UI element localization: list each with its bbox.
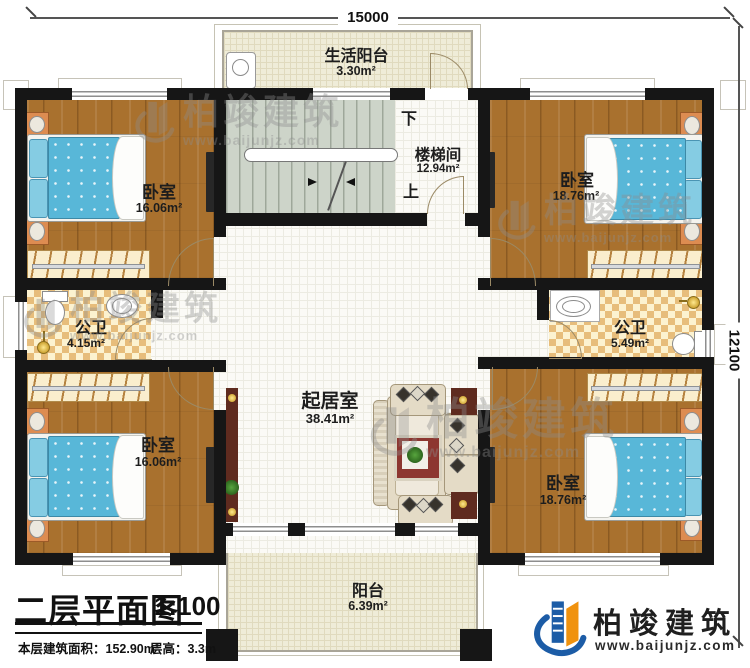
wall-segment <box>458 523 478 536</box>
wall-segment <box>478 88 490 237</box>
wall-segment <box>15 88 27 302</box>
shower-head <box>687 296 700 309</box>
wardrobe <box>587 250 704 281</box>
window <box>530 88 645 100</box>
nightstand <box>25 218 49 245</box>
window <box>525 553 660 565</box>
room-label-bedroom-top-left: 卧室 <box>104 184 214 203</box>
room-label-life-balcony: 生活阳台 <box>314 48 399 66</box>
room-label-stairwell: 楼梯间 <box>408 147 468 164</box>
company-logo-icon <box>531 596 587 658</box>
wall-segment <box>702 88 714 330</box>
dimension-tick <box>723 6 734 17</box>
wardrobe <box>27 373 150 402</box>
bed-pillow <box>29 139 48 178</box>
bed-mattress <box>608 437 686 517</box>
wall-segment <box>478 410 490 565</box>
bed-pillow <box>684 180 702 219</box>
bed-pillow <box>29 438 48 477</box>
media-wall <box>226 388 238 522</box>
sink-basin <box>562 300 585 313</box>
wardrobe <box>587 373 704 402</box>
room-label-bathroom-left: 公卫 <box>64 320 118 338</box>
washing-machine-door <box>232 59 249 76</box>
bed-pillow <box>684 478 702 516</box>
dimension-value-right: 12100 <box>726 323 743 379</box>
window <box>702 330 714 357</box>
stair-down-label: 下 <box>398 111 420 129</box>
wall-segment <box>395 523 415 536</box>
plan-scale: 1:100 <box>154 591 221 622</box>
spotlight <box>459 500 467 508</box>
stair-direction-arrow <box>308 178 317 186</box>
wall-segment <box>214 88 226 237</box>
wardrobe <box>27 250 150 281</box>
title-underline <box>15 622 202 634</box>
wall-segment <box>390 88 425 100</box>
plant <box>407 447 423 463</box>
wall-segment <box>226 213 427 226</box>
nightstand <box>25 408 49 435</box>
wall-segment <box>15 350 27 565</box>
room-area-bedroom-top-right: 18.76m² <box>521 190 631 204</box>
dimension-tick <box>25 6 36 17</box>
shower-stem <box>679 300 687 302</box>
window <box>15 302 27 350</box>
window-sill <box>518 565 669 576</box>
bed-pillow <box>29 478 48 517</box>
stair-up-label: 上 <box>400 184 422 202</box>
wall-segment <box>167 88 313 100</box>
room-area-living-room: 38.41m² <box>278 412 382 426</box>
sliding-door <box>305 523 395 536</box>
room-label-bathroom-right: 公卫 <box>603 320 657 338</box>
toilet-bowl <box>45 300 65 325</box>
window <box>313 88 390 100</box>
spotlight <box>228 508 236 516</box>
window <box>72 88 167 100</box>
sink-basin <box>112 298 132 314</box>
room-label-bedroom-bottom-right: 卧室 <box>508 475 618 494</box>
toilet-bowl <box>672 333 695 355</box>
dimension-value-top: 15000 <box>338 9 398 26</box>
room-area-bathroom-right: 5.49m² <box>604 337 656 350</box>
nightstand <box>680 408 704 435</box>
floor-plan-page: 生活阳台 3.30m² 下 楼梯间 12.94m² 上 卧室 16.06m² 卧… <box>0 0 750 668</box>
stair-handrail <box>244 148 398 162</box>
spotlight <box>228 394 236 402</box>
plant <box>224 480 239 495</box>
room-area-stairwell: 12.94m² <box>412 163 464 176</box>
room-label-bedroom-top-right: 卧室 <box>522 172 632 191</box>
company-name: 柏竣建筑 <box>593 600 737 642</box>
room-label-balcony: 阳台 <box>340 583 396 601</box>
room-label-bedroom-bottom-left: 卧室 <box>103 437 213 456</box>
sliding-door <box>415 523 458 536</box>
room-area-bedroom-top-left: 16.06m² <box>104 202 214 216</box>
room-area-bathroom-left: 4.15m² <box>60 337 112 350</box>
window-sill <box>720 80 746 110</box>
window-sill <box>62 565 182 576</box>
company-website: www.baijunjz.com <box>595 638 736 653</box>
bed-pillow <box>684 140 702 179</box>
wall-segment <box>151 290 163 318</box>
window <box>73 553 170 565</box>
room-area-bedroom-bottom-left: 16.06m² <box>103 456 213 470</box>
balcony-pillar <box>460 629 492 661</box>
wall-segment <box>702 357 714 565</box>
floor-area-text: 本层建筑面积：152.90m² <box>18 638 159 657</box>
shower-head <box>37 341 50 354</box>
sliding-door <box>233 523 288 536</box>
wall-segment <box>537 290 549 320</box>
wall-segment <box>214 410 226 565</box>
door-opening <box>425 88 468 100</box>
spotlight <box>459 396 467 404</box>
stair-direction-arrow <box>346 178 355 186</box>
room-area-balcony: 6.39m² <box>335 600 401 614</box>
room-area-life-balcony: 3.30m² <box>321 65 391 79</box>
room-area-bedroom-bottom-right: 18.76m² <box>508 494 618 508</box>
floor-height-text: 层高：3.3m <box>150 638 216 657</box>
bed-pillow <box>684 439 702 477</box>
wall-segment <box>465 213 478 226</box>
room-label-living-room: 起居室 <box>272 392 388 413</box>
company-logo: 柏竣建筑 www.baijunjz.com <box>531 594 743 660</box>
bed-pillow <box>29 179 48 218</box>
wall-segment <box>288 523 305 536</box>
